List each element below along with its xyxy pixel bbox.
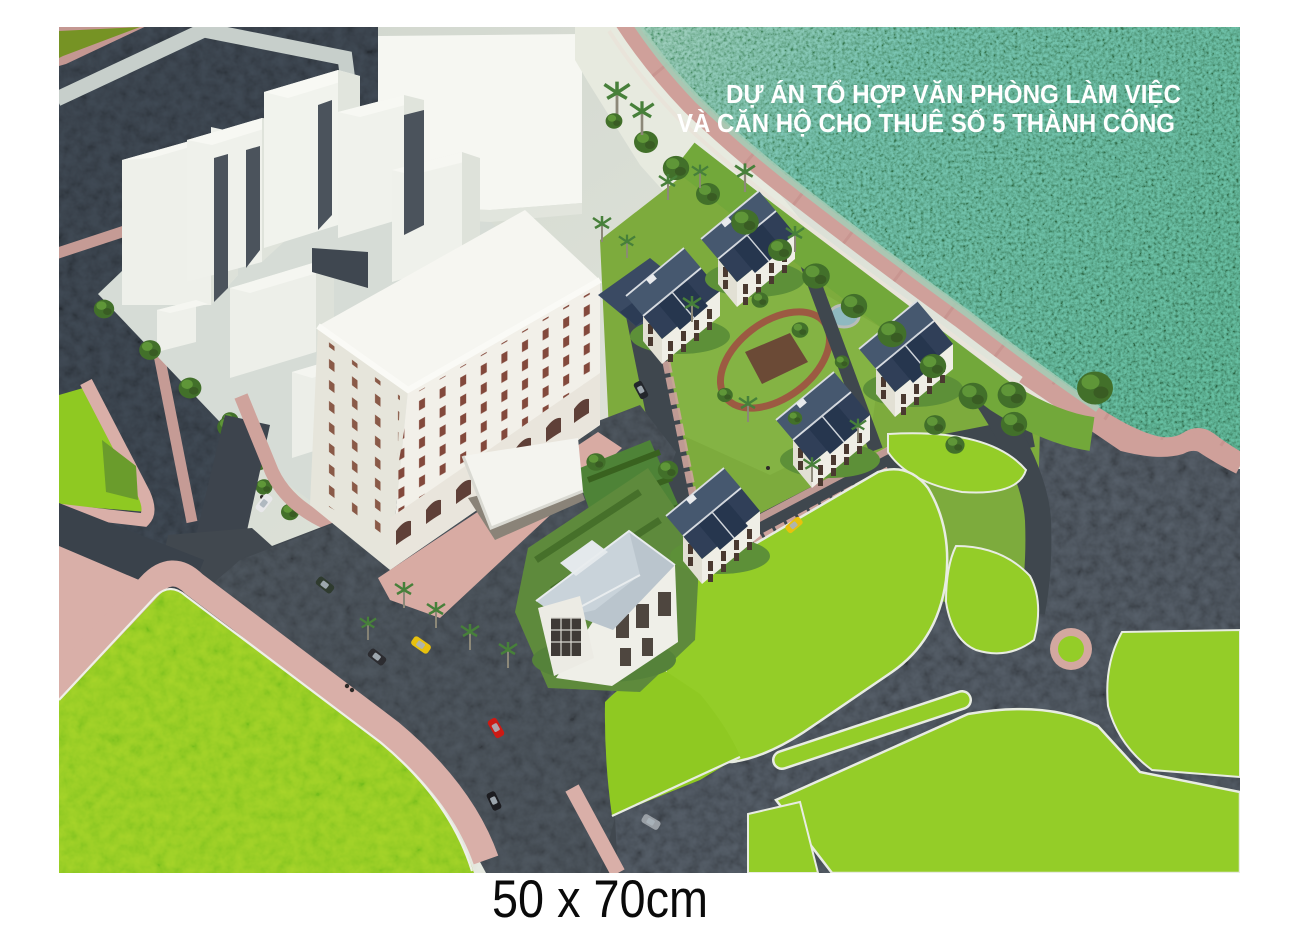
svg-text:VÀ CĂN HỘ CHO THUÊ SỐ 5 THÀNH: VÀ CĂN HỘ CHO THUÊ SỐ 5 THÀNH CÔNG: [677, 108, 1175, 138]
svg-text:DỰ ÁN TỔ HỢP VĂN PHÒNG LÀM VIỆ: DỰ ÁN TỔ HỢP VĂN PHÒNG LÀM VIỆC: [726, 79, 1181, 109]
svg-text:50 x 70cm: 50 x 70cm: [492, 870, 708, 929]
